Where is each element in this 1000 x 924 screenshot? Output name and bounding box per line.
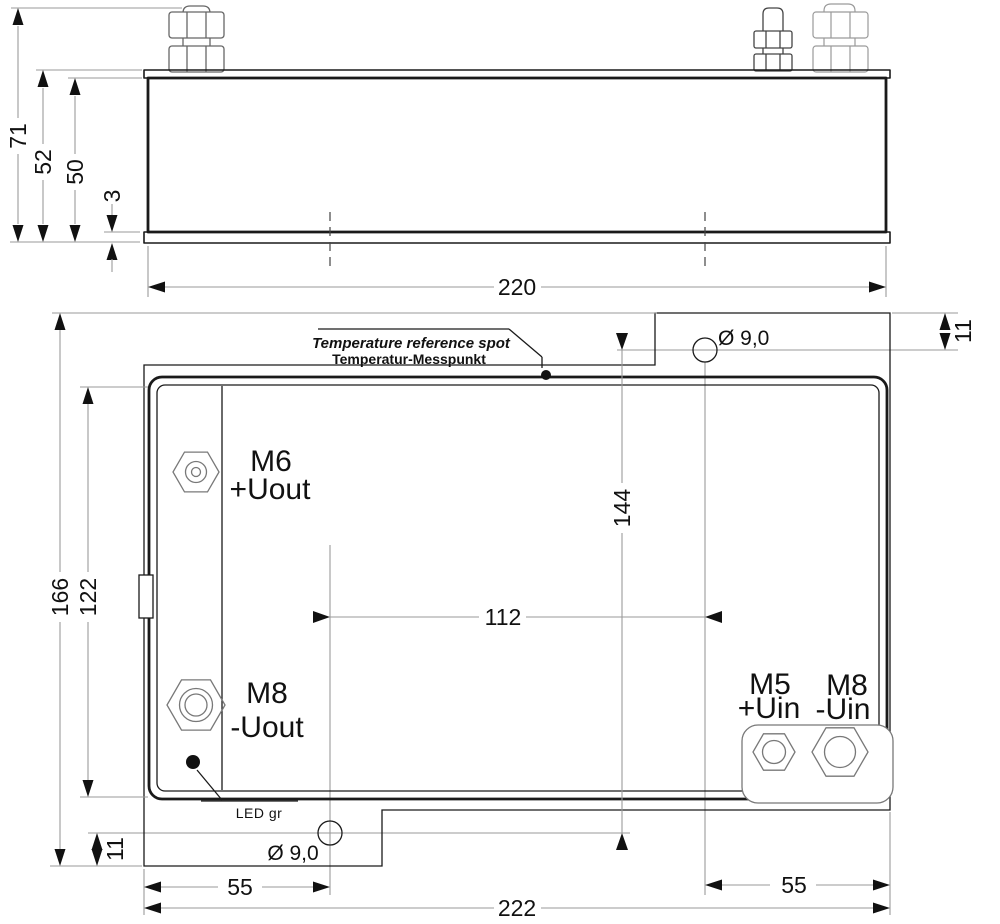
dim-body-height: 50 — [62, 78, 142, 242]
mounting-hole-bottom — [318, 821, 342, 845]
input-bolt-m5 — [754, 8, 792, 71]
temperature-callout-label-de: Temperatur-Messpunkt — [332, 351, 486, 367]
terminal-label-m8out-thread: M8 — [246, 677, 288, 710]
dim-122-label: 122 — [75, 578, 101, 616]
technical-drawing-page: 71 52 50 3 — [0, 0, 1000, 924]
din-notch — [139, 575, 153, 618]
dim-11-top-label: 11 — [950, 319, 976, 343]
dim-tab-offset-top: 11 — [892, 313, 976, 350]
dim-hole-span-horizontal: 112 — [313, 604, 722, 630]
dim-52-label: 52 — [30, 149, 56, 175]
dim-hole-right-offset: 55 — [705, 812, 890, 915]
side-view: 71 52 50 3 — [5, 4, 890, 300]
dim-base-thickness: 3 — [99, 190, 140, 272]
terminal-label-uout-plus: +Uout — [230, 473, 312, 506]
dim-50-label: 50 — [62, 159, 88, 185]
hex-nut-uout-m6 — [173, 452, 219, 492]
dim-166-label: 166 — [47, 578, 73, 616]
temperature-callout: Temperature reference spot Temperatur-Me… — [312, 329, 551, 380]
output-bolt-nut-upper — [169, 12, 224, 38]
terminal-label-uin-minus: -Uin — [815, 693, 870, 726]
input-terminal-block — [742, 725, 893, 803]
side-base-plate — [144, 232, 890, 243]
dim-3-label: 3 — [99, 190, 125, 203]
dim-overall-width: 222 — [144, 895, 890, 921]
dim-body-width: 220 — [148, 246, 886, 300]
led-dot — [186, 755, 200, 769]
hex-nut-uout-m8 — [167, 680, 225, 730]
dim-55-left-label: 55 — [227, 874, 253, 900]
output-bolt-nut-lower — [169, 46, 224, 72]
output-bolt — [169, 6, 224, 72]
dim-11-bottom-label: 11 — [102, 837, 128, 861]
dim-144-label: 144 — [609, 489, 635, 528]
dim-overall-height: 71 — [5, 8, 182, 242]
temperature-spot-dot — [541, 370, 551, 380]
side-body — [148, 78, 886, 232]
dim-222-label: 222 — [498, 895, 536, 921]
led-leader — [197, 770, 222, 800]
hole-top-label: Ø 9,0 — [718, 327, 769, 350]
dim-body-height-plan: 122 — [75, 387, 148, 797]
mounting-hole-top — [693, 338, 717, 362]
dim-hole-span-vertical: 144 — [609, 333, 635, 850]
dim-220-label: 220 — [498, 274, 536, 300]
dim-tab-offset-bottom: 11 — [92, 833, 129, 866]
led-callout: LED gr — [186, 755, 298, 821]
technical-drawing: 71 52 50 3 — [0, 0, 1000, 924]
terminal-label-uin-plus: +Uin — [738, 692, 801, 725]
led-label: LED gr — [236, 805, 283, 821]
input-bolt-m8 — [813, 4, 868, 72]
temperature-callout-label-en: Temperature reference spot — [312, 335, 511, 352]
dim-112-label: 112 — [485, 604, 522, 630]
hole-bottom-label: Ø 9,0 — [267, 842, 318, 865]
terminal-label-uout-minus: -Uout — [230, 711, 304, 744]
plan-view: Temperature reference spot Temperatur-Me… — [47, 313, 976, 921]
dim-71-label: 71 — [5, 123, 31, 149]
dim-flange-height: 52 — [30, 70, 142, 242]
dim-55-right-label: 55 — [781, 872, 807, 898]
